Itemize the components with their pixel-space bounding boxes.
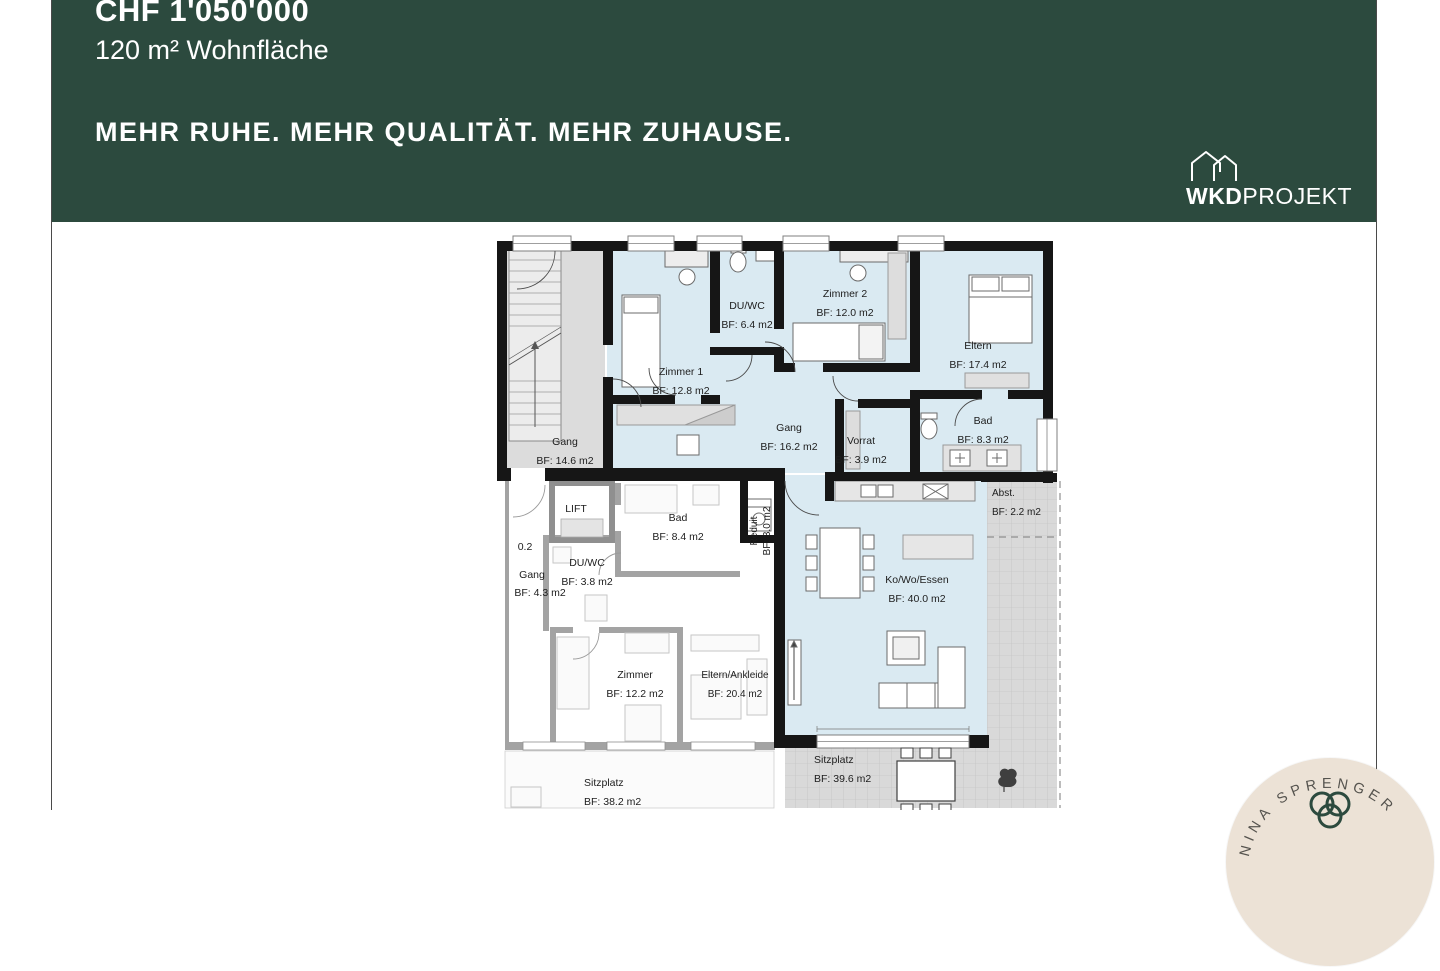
brand-bold: WKD xyxy=(1186,183,1242,209)
realtor-logo-icon xyxy=(1311,793,1349,827)
label-duwc64-area: BF: 6.4 m2 xyxy=(721,319,773,331)
label-bad84-area: BF: 8.4 m2 xyxy=(652,531,704,543)
label-sitz396-name: Sitzplatz xyxy=(814,754,854,766)
label-zimmer2-area: BF: 12.0 m2 xyxy=(816,307,873,319)
realtor-badge: NINA SPRENGER xyxy=(1226,758,1434,966)
houses-icon xyxy=(1188,148,1244,182)
label-reduit-name: Reduit xyxy=(749,516,760,545)
label-duwc64-name: DU/WC xyxy=(729,300,765,312)
label-gang146-area: BF: 14.6 m2 xyxy=(536,455,593,467)
label-duwc38-name: DU/WC xyxy=(569,557,605,569)
label-sitz396-area: BF: 39.6 m2 xyxy=(814,773,871,785)
brand-wordmark: WKDPROJEKT xyxy=(1186,183,1352,210)
label-lift: LIFT xyxy=(565,503,587,515)
realtor-badge-svg: NINA SPRENGER xyxy=(1226,758,1434,966)
label-bad83-name: Bad xyxy=(974,415,993,427)
label-kowo-name: Ko/Wo/Essen xyxy=(885,574,949,586)
slogan-text: MEHR RUHE. MEHR QUALITÄT. MEHR ZUHAUSE. xyxy=(95,117,793,148)
brand-logo: WKDPROJEKT xyxy=(1186,148,1352,210)
floor-plan-svg: Gang BF: 14.6 m2 Zimmer 1 BF: 12.8 m2 DU… xyxy=(495,235,1065,810)
price-text: CHF 1'050'000 xyxy=(95,0,1376,29)
label-gang162-area: BF: 16.2 m2 xyxy=(760,441,817,453)
label-bad84-name: Bad xyxy=(669,512,688,524)
label-zimmer122-area: BF: 12.2 m2 xyxy=(606,688,663,700)
label-duwc38-area: BF: 3.8 m2 xyxy=(561,576,613,588)
label-zimmer1-name: Zimmer 1 xyxy=(659,366,703,378)
living-area-text: 120 m² Wohnfläche xyxy=(95,34,1376,66)
floor-plan: Gang BF: 14.6 m2 Zimmer 1 BF: 12.8 m2 DU… xyxy=(495,235,1065,810)
label-sitz382-name: Sitzplatz xyxy=(584,777,624,789)
green-header: CHF 1'050'000 120 m² Wohnfläche MEHR RUH… xyxy=(52,0,1376,222)
label-gang43-name: Gang xyxy=(519,569,545,581)
label-zimmer122-name: Zimmer xyxy=(617,669,653,681)
label-kowo-area: BF: 40.0 m2 xyxy=(888,593,945,605)
label-level: 0.2 xyxy=(518,541,533,553)
label-zimmer1-area: BF: 12.8 m2 xyxy=(652,385,709,397)
flyer-card: CHF 1'050'000 120 m² Wohnfläche MEHR RUH… xyxy=(51,0,1377,810)
label-gang162-name: Gang xyxy=(776,422,802,434)
label-sitz382-area: BF: 38.2 m2 xyxy=(584,796,641,808)
label-gang146-name: Gang xyxy=(552,436,578,448)
label-vorrat-name: Vorrat xyxy=(847,435,875,447)
label-reduit-area: BF: 3.0 m2 xyxy=(762,506,773,555)
label-elternank-area: BF: 20.4 m2 xyxy=(708,689,763,700)
stairs xyxy=(509,249,561,441)
label-eltern-name: Eltern xyxy=(964,340,992,352)
label-eltern-area: BF: 17.4 m2 xyxy=(949,359,1006,371)
label-abst-name: Abst. xyxy=(992,488,1015,499)
label-abst-area: BF: 2.2 m2 xyxy=(992,507,1041,518)
tree-icon xyxy=(998,769,1016,787)
label-vorrat-area: BF: 3.9 m2 xyxy=(835,454,887,466)
label-elternank-name: Eltern/Ankleide xyxy=(701,670,769,681)
label-zimmer2-name: Zimmer 2 xyxy=(823,288,867,300)
label-bad83-area: BF: 8.3 m2 xyxy=(957,434,1009,446)
brand-light: PROJEKT xyxy=(1242,183,1352,209)
label-gang43-area: BF: 4.3 m2 xyxy=(514,587,566,599)
